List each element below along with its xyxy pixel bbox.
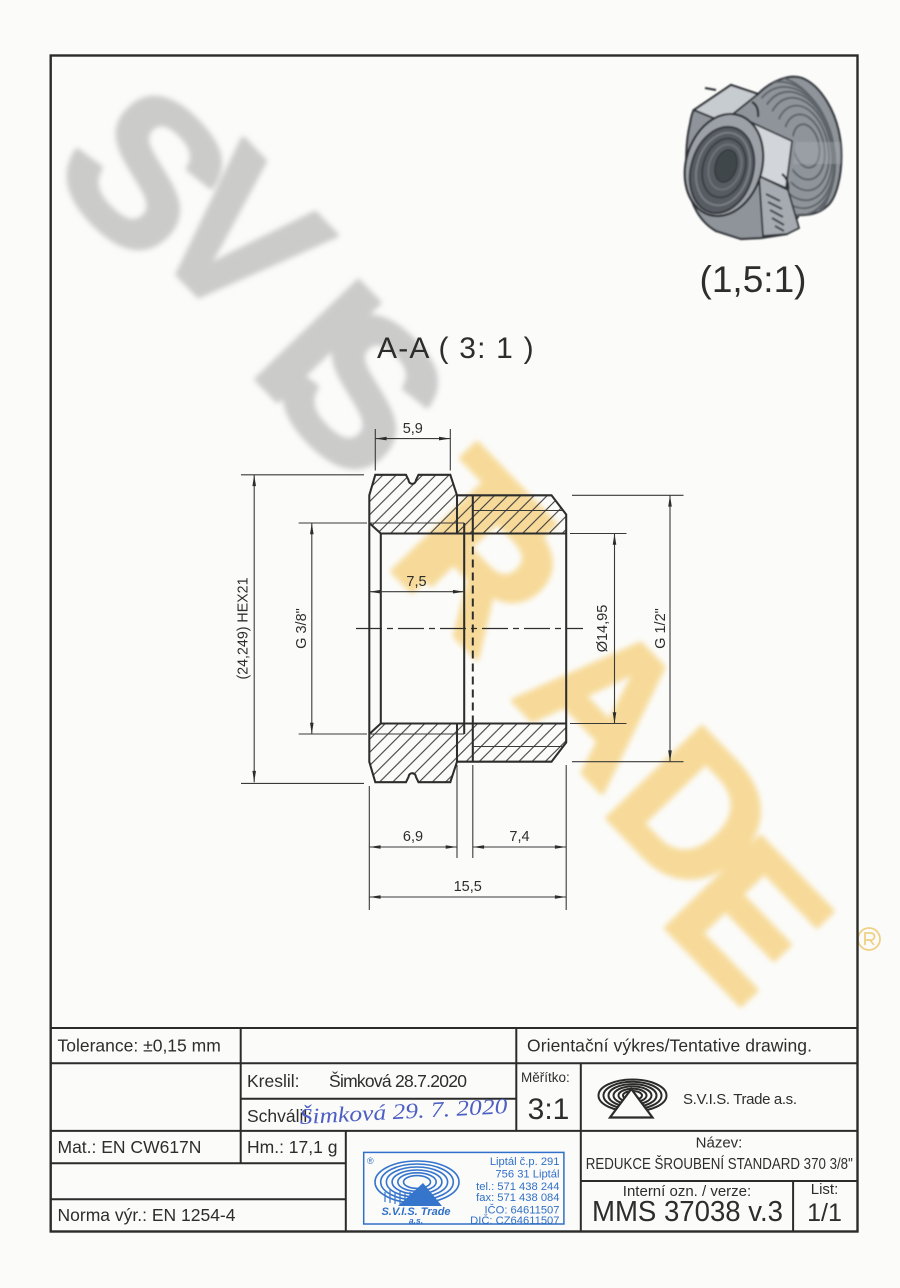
svg-text:A-A ( 3: 1 ): A-A ( 3: 1 ) [377, 332, 535, 365]
svg-text:Ø14,95: Ø14,95 [595, 605, 611, 653]
svg-text:Liptál č.p. 291: Liptál č.p. 291 [490, 1156, 560, 1168]
svg-text:REDUKCE ŠROUBENÍ STANDARD 370: REDUKCE ŠROUBENÍ STANDARD 370 3/8" [586, 1156, 853, 1173]
svg-text:3:1: 3:1 [528, 1093, 570, 1126]
svg-text:5,9: 5,9 [403, 421, 423, 437]
svg-text:Mat.: EN CW617N: Mat.: EN CW617N [58, 1137, 202, 1157]
svg-text:Měřítko:: Měřítko: [521, 1070, 570, 1085]
svg-text:List:: List: [811, 1181, 839, 1198]
svg-text:(1,5:1): (1,5:1) [700, 259, 807, 300]
svg-text:(24,249) HEX21: (24,249) HEX21 [236, 578, 252, 680]
svg-text:7,4: 7,4 [509, 829, 529, 845]
svg-text:MMS 37038 v.3: MMS 37038 v.3 [592, 1196, 783, 1228]
svg-text:®: ® [367, 1156, 374, 1166]
svg-text:G 1/2": G 1/2" [653, 608, 669, 649]
svg-text:15,5: 15,5 [454, 879, 482, 895]
svg-text:6,9: 6,9 [403, 829, 423, 845]
svg-text:7,5: 7,5 [406, 574, 426, 590]
svg-text:G 3/8": G 3/8" [294, 608, 310, 649]
svg-text:a.s.: a.s. [409, 1216, 423, 1226]
svg-text:Kreslil:: Kreslil: [247, 1071, 300, 1091]
svg-text:Hm.: 17,1 g: Hm.: 17,1 g [247, 1137, 337, 1157]
svg-text:756 31 Liptál: 756 31 Liptál [495, 1169, 559, 1181]
svg-text:Tolerance: ±0,15 mm: Tolerance: ±0,15 mm [58, 1036, 221, 1056]
svg-text:Název:: Název: [696, 1135, 743, 1152]
svg-text:1/1: 1/1 [807, 1199, 842, 1227]
svg-text:fax: 571 438 084: fax: 571 438 084 [476, 1192, 559, 1204]
svg-text:S.V.I.S. Trade a.s.: S.V.I.S. Trade a.s. [683, 1091, 797, 1108]
svg-text:DIČ: CZ64611507: DIČ: CZ64611507 [470, 1214, 559, 1227]
svg-text:Šimková 28.7.2020: Šimková 28.7.2020 [329, 1070, 467, 1091]
svg-text:Norma výr.: EN 1254-4: Norma výr.: EN 1254-4 [58, 1205, 236, 1225]
svg-text:Orientační výkres/Tentative dr: Orientační výkres/Tentative drawing. [527, 1036, 812, 1056]
